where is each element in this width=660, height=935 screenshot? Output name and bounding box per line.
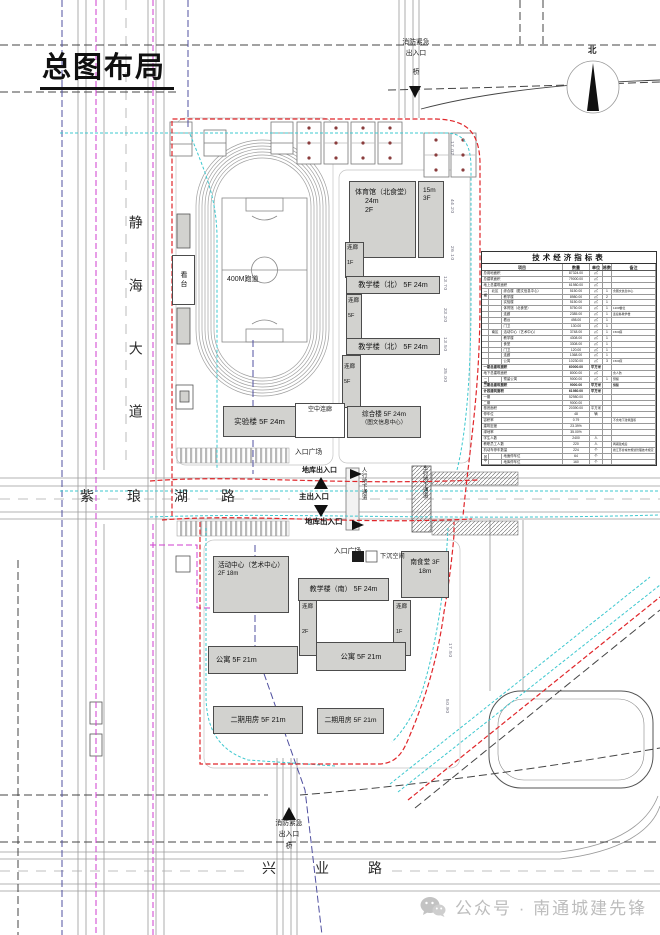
table-cell: 1500床 xyxy=(612,359,656,364)
table-cell: ㎡ xyxy=(590,336,603,341)
wechat-icon xyxy=(420,896,446,918)
garage-exit-north-label: 地库出入口 xyxy=(302,467,337,475)
building-sublabel: 18m xyxy=(402,568,448,577)
table-cell xyxy=(482,324,489,329)
table-cell xyxy=(489,359,502,364)
garage-exit-south-label: 地库出入口 xyxy=(305,517,343,526)
table-cell: 20390.00 xyxy=(563,406,590,411)
table-cell xyxy=(612,365,656,370)
table-cell: 门卫 xyxy=(502,348,563,353)
table-cell xyxy=(603,448,612,453)
header-project: 项目 xyxy=(482,264,563,270)
table-cell: 1 xyxy=(603,312,612,317)
table-cell xyxy=(482,300,489,305)
building-sublabel: 2F xyxy=(302,629,316,636)
table-cell xyxy=(612,395,656,400)
table-title: 技术经济指标表 xyxy=(482,252,656,264)
table-cell: 二期总建筑面积 xyxy=(482,383,563,388)
table-cell: 160 xyxy=(563,460,590,465)
road-west-label: 静海大道 xyxy=(127,215,144,467)
table-cell: 二期 xyxy=(482,401,563,406)
table-cell xyxy=(489,295,502,300)
building-label: 教学楼（南） 5F 24m xyxy=(310,585,378,594)
table-cell: 总建筑面积 xyxy=(482,277,563,282)
building-label: 教学楼（北） 5F 24m xyxy=(358,280,428,289)
table-cell: 1 xyxy=(603,306,612,311)
table-cell: 61980.00 xyxy=(563,389,590,394)
building-corridor-s1: 连廊2F xyxy=(299,600,317,656)
underground-passages xyxy=(346,466,518,562)
table-cell xyxy=(612,436,656,441)
table-cell: 平方米 xyxy=(590,389,603,394)
north-label-label: 北 xyxy=(588,45,597,55)
table-cell: 1 xyxy=(603,324,612,329)
building-apartment-2: 公寓 5F 21m xyxy=(316,642,406,671)
table-cell xyxy=(603,283,612,288)
table-cell: 个 xyxy=(590,448,603,453)
table-cell xyxy=(482,306,489,311)
table-cell xyxy=(603,460,612,465)
table-cell: 61980.00 xyxy=(563,283,590,288)
building-sublabel: 5F xyxy=(348,313,361,320)
building-label: 连廊 xyxy=(348,298,361,305)
table-cell: ㎡ xyxy=(590,271,603,276)
table-cell: 23.39% xyxy=(563,424,590,429)
table-cell: 教学楼 xyxy=(502,336,563,341)
building-teach-south: 教学楼（南） 5F 24m xyxy=(298,578,389,601)
table-cell: 平方米 xyxy=(590,406,603,411)
table-cell: 2400 xyxy=(563,436,590,441)
table-cell: 连廊 xyxy=(502,312,563,317)
table-cell xyxy=(612,295,656,300)
table-cell: 含人防 xyxy=(612,371,656,376)
table-cell: 2385.00 xyxy=(563,312,590,317)
table-cell: 食堂 xyxy=(502,342,563,347)
building-teach-north-1: 教学楼（北） 5F 24m xyxy=(346,276,440,294)
building-lab: 实验楼 5F 24m xyxy=(223,406,296,437)
plaza-south-label: 入口广场 xyxy=(334,548,361,556)
table-cell xyxy=(603,395,612,400)
table-cell: 地上总建筑面积 xyxy=(482,283,563,288)
table-cell xyxy=(603,371,612,376)
plaza-north-label: 入口广场 xyxy=(295,449,322,457)
header-unit: 单位 xyxy=(590,264,603,270)
table-cell: ㎡ xyxy=(590,283,603,288)
table-row: 地库停车位160个 xyxy=(482,460,656,466)
table-cell xyxy=(612,324,656,329)
table-cell xyxy=(603,418,612,423)
building-sublabel: 2F 18m xyxy=(218,571,288,579)
table-cell: 不含地下建筑面积 xyxy=(612,418,656,423)
table-cell: 计容建筑面积 xyxy=(482,389,563,394)
dimension-label: 17.02 xyxy=(449,141,454,156)
building-sublabel: 2F xyxy=(365,206,415,215)
table-cell xyxy=(612,424,656,429)
table-cell: 基底面积 xyxy=(482,406,563,411)
table-cell: 平方米 xyxy=(590,383,603,388)
table-cell: 按江苏省城市规划管理技术规定（2023版） xyxy=(612,448,656,453)
building-label: 实验楼 5F 24m xyxy=(234,417,285,427)
table-cell xyxy=(489,342,502,347)
building-sublabel: 24m xyxy=(365,197,415,206)
table-cell xyxy=(489,353,502,358)
table-cell: 8980.00 xyxy=(563,295,590,300)
table-cell: 1 xyxy=(603,348,612,353)
table-cell xyxy=(603,389,612,394)
road-south-label: 兴业路 xyxy=(262,860,421,877)
building-sublabel: 15m xyxy=(423,187,443,195)
ped-tunnel-label: 人行地下通道 xyxy=(360,467,367,500)
building-gym-annex: 15m3F xyxy=(418,181,444,258)
table-cell xyxy=(603,401,612,406)
table-cell xyxy=(612,277,656,282)
table-cell xyxy=(612,342,656,347)
table-cell: 0.79 xyxy=(563,418,590,423)
building-sublabel: 1F xyxy=(396,629,410,636)
table-cell: 87324.00 xyxy=(563,271,590,276)
dimension-label: 50.90 xyxy=(444,699,449,714)
north-east-curve xyxy=(421,80,660,109)
table-cell: 220 xyxy=(563,442,590,447)
header-remark: 备注 xyxy=(612,264,656,270)
building-label: 空中连廊 xyxy=(296,407,344,415)
table-cell: 两期建成后 xyxy=(612,442,656,447)
table-cell: 地下总建筑面积 xyxy=(482,371,563,376)
table-cell: 公寓 xyxy=(502,359,563,364)
building-corridor-n1: 连廊1F xyxy=(345,242,364,278)
table-cell: ㎡ xyxy=(590,300,603,305)
site-plan-canvas: 总图布局 技术经济指标表 项目 数量 单位 栋数 备注 总用地面积87324.0… xyxy=(0,0,660,935)
table-cell: ㎡ xyxy=(590,371,603,376)
table-cell xyxy=(489,336,502,341)
table-cell: 3 xyxy=(603,359,612,364)
table-cell xyxy=(489,318,502,323)
table-cell xyxy=(612,412,656,417)
table-cell xyxy=(489,324,502,329)
building-sublabel: 5F xyxy=(344,379,360,386)
table-cell xyxy=(603,271,612,276)
dimension-label: 35.00 xyxy=(442,368,447,383)
table-cell: 2 xyxy=(603,295,612,300)
building-sublabel: （图文信息中心） xyxy=(348,420,420,427)
table-cell: ㎡ xyxy=(590,312,603,317)
building-teach-north-2: 教学楼（北） 5F 24m xyxy=(346,338,440,355)
building-label: 公寓 5F 21m xyxy=(341,652,382,661)
table-cell: ㎡ xyxy=(590,342,603,347)
building-label: 二期用房 5F 21m xyxy=(324,717,376,726)
table-cell: 教职员工人数 xyxy=(482,442,563,447)
table-cell: 连接各教学楼 xyxy=(612,312,656,317)
table-cell xyxy=(612,406,656,411)
building-activity-center: 活动中心（艺术中心）2F 18m xyxy=(213,556,289,613)
header-quantity: 数量 xyxy=(563,264,590,270)
table-cell: ㎡ xyxy=(590,306,603,311)
table-cell: 个 xyxy=(590,460,603,465)
table-cell: ㎡ xyxy=(590,295,603,300)
dimension-label: 44.20 xyxy=(449,199,454,214)
building-label: 连廊 xyxy=(396,604,410,611)
veh-tunnel-label: 车行地下通道 xyxy=(421,465,428,498)
table-cell xyxy=(612,271,656,276)
fire-bottom-label: 消防紧急 出入口 xyxy=(264,818,314,840)
watermark-text: 公众号 · 南通城建先锋 xyxy=(455,894,647,919)
table-cell: 看台 xyxy=(502,318,563,323)
table-cell: ㎡ xyxy=(590,324,603,329)
table-cell xyxy=(482,342,489,347)
main-entrance-label: 主出入口 xyxy=(299,492,329,501)
table-cell: 35.00% xyxy=(563,430,590,435)
building-label: 公寓 5F 21m xyxy=(216,655,257,664)
table-cell xyxy=(603,383,612,388)
table-cell xyxy=(612,389,656,394)
building-corridor-n3: 连廊5F xyxy=(342,355,361,408)
table-cell: 3308.00 xyxy=(563,342,590,347)
road-middle-label: 紫琅湖路 xyxy=(80,488,268,505)
table-cell: 人 xyxy=(590,442,603,447)
table-cell xyxy=(489,348,502,353)
table-header: 项目 数量 单位 栋数 备注 xyxy=(482,264,656,271)
table-cell xyxy=(612,353,656,358)
table-cell: ㎡ xyxy=(590,353,603,358)
table-cell: 总用地面积 xyxy=(482,271,563,276)
table-cell: 1368.00 xyxy=(563,353,590,358)
table-cell xyxy=(603,365,612,370)
economic-indicators-table: 技术经济指标表 项目 数量 单位 栋数 备注 总用地面积87324.00㎡总建筑… xyxy=(481,251,657,466)
ring-road-inner xyxy=(498,699,644,780)
dimension-label: 17.50 xyxy=(447,643,452,658)
table-cell: 120.00 xyxy=(563,348,590,353)
page-title: 总图布局 xyxy=(40,44,174,90)
bridge-top-label: 桥 xyxy=(404,69,428,77)
table-cell xyxy=(612,300,656,305)
soccer-field xyxy=(222,198,307,342)
table-cell: 48 xyxy=(563,412,590,417)
table-cell: 建筑密度 xyxy=(482,424,563,429)
table-cell: 地库停车位 xyxy=(502,460,563,465)
table-cell xyxy=(603,424,612,429)
building-label: 二期用房 5F 21m xyxy=(230,715,285,724)
table-cell xyxy=(612,401,656,406)
table-cell: 9000.00 xyxy=(563,383,590,388)
building-phase2-2: 二期用房 5F 21m xyxy=(317,708,384,734)
table-cell xyxy=(482,353,489,358)
table-cell: 预留 xyxy=(612,383,656,388)
north-arrow xyxy=(567,61,619,113)
table-cell: ㎡ xyxy=(590,277,603,282)
table-cell xyxy=(482,359,489,364)
sunken-space-label: 下沉空间 xyxy=(380,553,405,560)
table-cell xyxy=(482,460,489,465)
building-complex: 综合楼 5F 24m（图文信息中心） xyxy=(347,406,421,438)
main-entrance-arrow-down xyxy=(314,505,328,517)
table-cell xyxy=(482,348,489,353)
table-cell: 224 xyxy=(563,448,590,453)
dimension-label: 13.50 xyxy=(442,337,447,352)
building-label: 南食堂 3F xyxy=(402,559,448,568)
table-cell: 52980.00 xyxy=(563,395,590,400)
dimension-label: 33.20 xyxy=(442,308,447,323)
table-cell xyxy=(489,460,502,465)
building-stand: 看台 xyxy=(172,255,195,305)
building-label: 教学楼（北） 5F 24m xyxy=(358,342,428,351)
table-cell: ㎡ xyxy=(590,359,603,364)
table-cell: 4308.00 xyxy=(563,336,590,341)
sports-courts xyxy=(170,122,476,177)
table-cell: ㎡ xyxy=(590,318,603,323)
table-cell xyxy=(603,406,612,411)
fire-top-label: 消防紧急 出入口 xyxy=(391,37,441,59)
building-label: 连廊 xyxy=(347,245,363,252)
table-cell xyxy=(590,430,603,435)
table-cell xyxy=(482,312,489,317)
building-label: 看台 xyxy=(179,271,188,289)
table-cell: 8000.00 xyxy=(563,371,590,376)
table-cell xyxy=(603,412,612,417)
table-cell: 辆 xyxy=(590,412,603,417)
table-cell: 一期总建筑面积 xyxy=(482,365,563,370)
table-cell: 体育馆（北食堂） xyxy=(502,306,563,311)
table-cell: ㎡ xyxy=(590,348,603,353)
table-cell: 实验楼 xyxy=(502,300,563,305)
table-cell: 一期 xyxy=(482,395,563,400)
table-cell xyxy=(489,300,502,305)
table-cell xyxy=(612,283,656,288)
track-label: 400M跑道 xyxy=(227,276,259,284)
building-corridor-n2: 连廊5F xyxy=(346,294,362,339)
table-cell: 门卫 xyxy=(502,324,563,329)
table-cell xyxy=(590,395,603,400)
table-cell xyxy=(590,401,603,406)
building-apartment-1: 公寓 5F 21m xyxy=(208,646,298,674)
watermark: 公众号 · 南通城建先锋 xyxy=(420,894,647,919)
building-sky-corridor: 空中连廊 xyxy=(295,403,345,438)
table-cell: 绿地率 xyxy=(482,430,563,435)
table-cell: 9000.00 xyxy=(563,401,590,406)
building-phase2-1: 二期用房 5F 21m xyxy=(213,706,303,734)
table-cell: 1 xyxy=(603,300,612,305)
table-cell xyxy=(482,318,489,323)
header-count: 栋数 xyxy=(603,264,612,270)
building-label: 体育馆（北食堂） xyxy=(355,188,415,197)
table-cell xyxy=(590,424,603,429)
building-sublabel: 3F xyxy=(423,195,443,203)
table-cell: 停车位 xyxy=(482,412,563,417)
table-cell xyxy=(612,318,656,323)
main-entrance-arrow-up xyxy=(314,477,328,489)
table-cell: 1200餐位 xyxy=(612,306,656,311)
table-cell xyxy=(612,336,656,341)
building-sublabel: 1F xyxy=(347,260,363,267)
table-cell: 130.00 xyxy=(563,324,590,329)
dimension-label: 26.10 xyxy=(449,246,454,261)
table-cell: 1 xyxy=(603,336,612,341)
table-cell: 教学楼 xyxy=(502,295,563,300)
bridge-bottom-label: 桥 xyxy=(277,843,301,851)
table-cell xyxy=(489,312,502,317)
table-cell: 5150.00 xyxy=(563,300,590,305)
table-cell xyxy=(603,277,612,282)
table-cell xyxy=(590,418,603,423)
table-cell xyxy=(612,348,656,353)
table-cell xyxy=(603,442,612,447)
table-cell xyxy=(603,430,612,435)
table-cell xyxy=(603,436,612,441)
building-label: 活动中心（艺术中心） xyxy=(218,562,288,571)
table-cell: 79000.00 xyxy=(563,277,590,282)
table-cell: 学生人数 xyxy=(482,436,563,441)
building-label: 连廊 xyxy=(344,364,360,371)
table-cell xyxy=(482,295,489,300)
building-label: 综合楼 5F 24m xyxy=(348,411,420,420)
table-cell: 60000.00 xyxy=(563,365,590,370)
building-canteen-south: 南食堂 3F18m xyxy=(401,551,449,598)
table-cell: 容积率 xyxy=(482,418,563,423)
table-cell: 10230.00 xyxy=(563,359,590,364)
table-cell xyxy=(612,460,656,465)
table-cell: 1 xyxy=(603,318,612,323)
table-cell: 1 xyxy=(603,342,612,347)
table-cell: 498.00 xyxy=(563,318,590,323)
table-cell: 人 xyxy=(590,436,603,441)
table-cell xyxy=(482,336,489,341)
dimension-label: 13.70 xyxy=(442,276,447,291)
table-cell: 平方米 xyxy=(590,365,603,370)
building-label: 连廊 xyxy=(302,604,316,611)
table-cell: 5750.00 xyxy=(563,306,590,311)
ring-road-outer xyxy=(489,691,653,788)
table-cell: 连廊 xyxy=(502,353,563,358)
table-cell xyxy=(489,306,502,311)
table-body: 总用地面积87324.00㎡总建筑面积79000.00㎡地上总建筑面积61980… xyxy=(482,271,656,465)
table-cell xyxy=(612,430,656,435)
table-cell: 1 xyxy=(603,353,612,358)
table-cell: 机动车停车数量 xyxy=(482,448,563,453)
